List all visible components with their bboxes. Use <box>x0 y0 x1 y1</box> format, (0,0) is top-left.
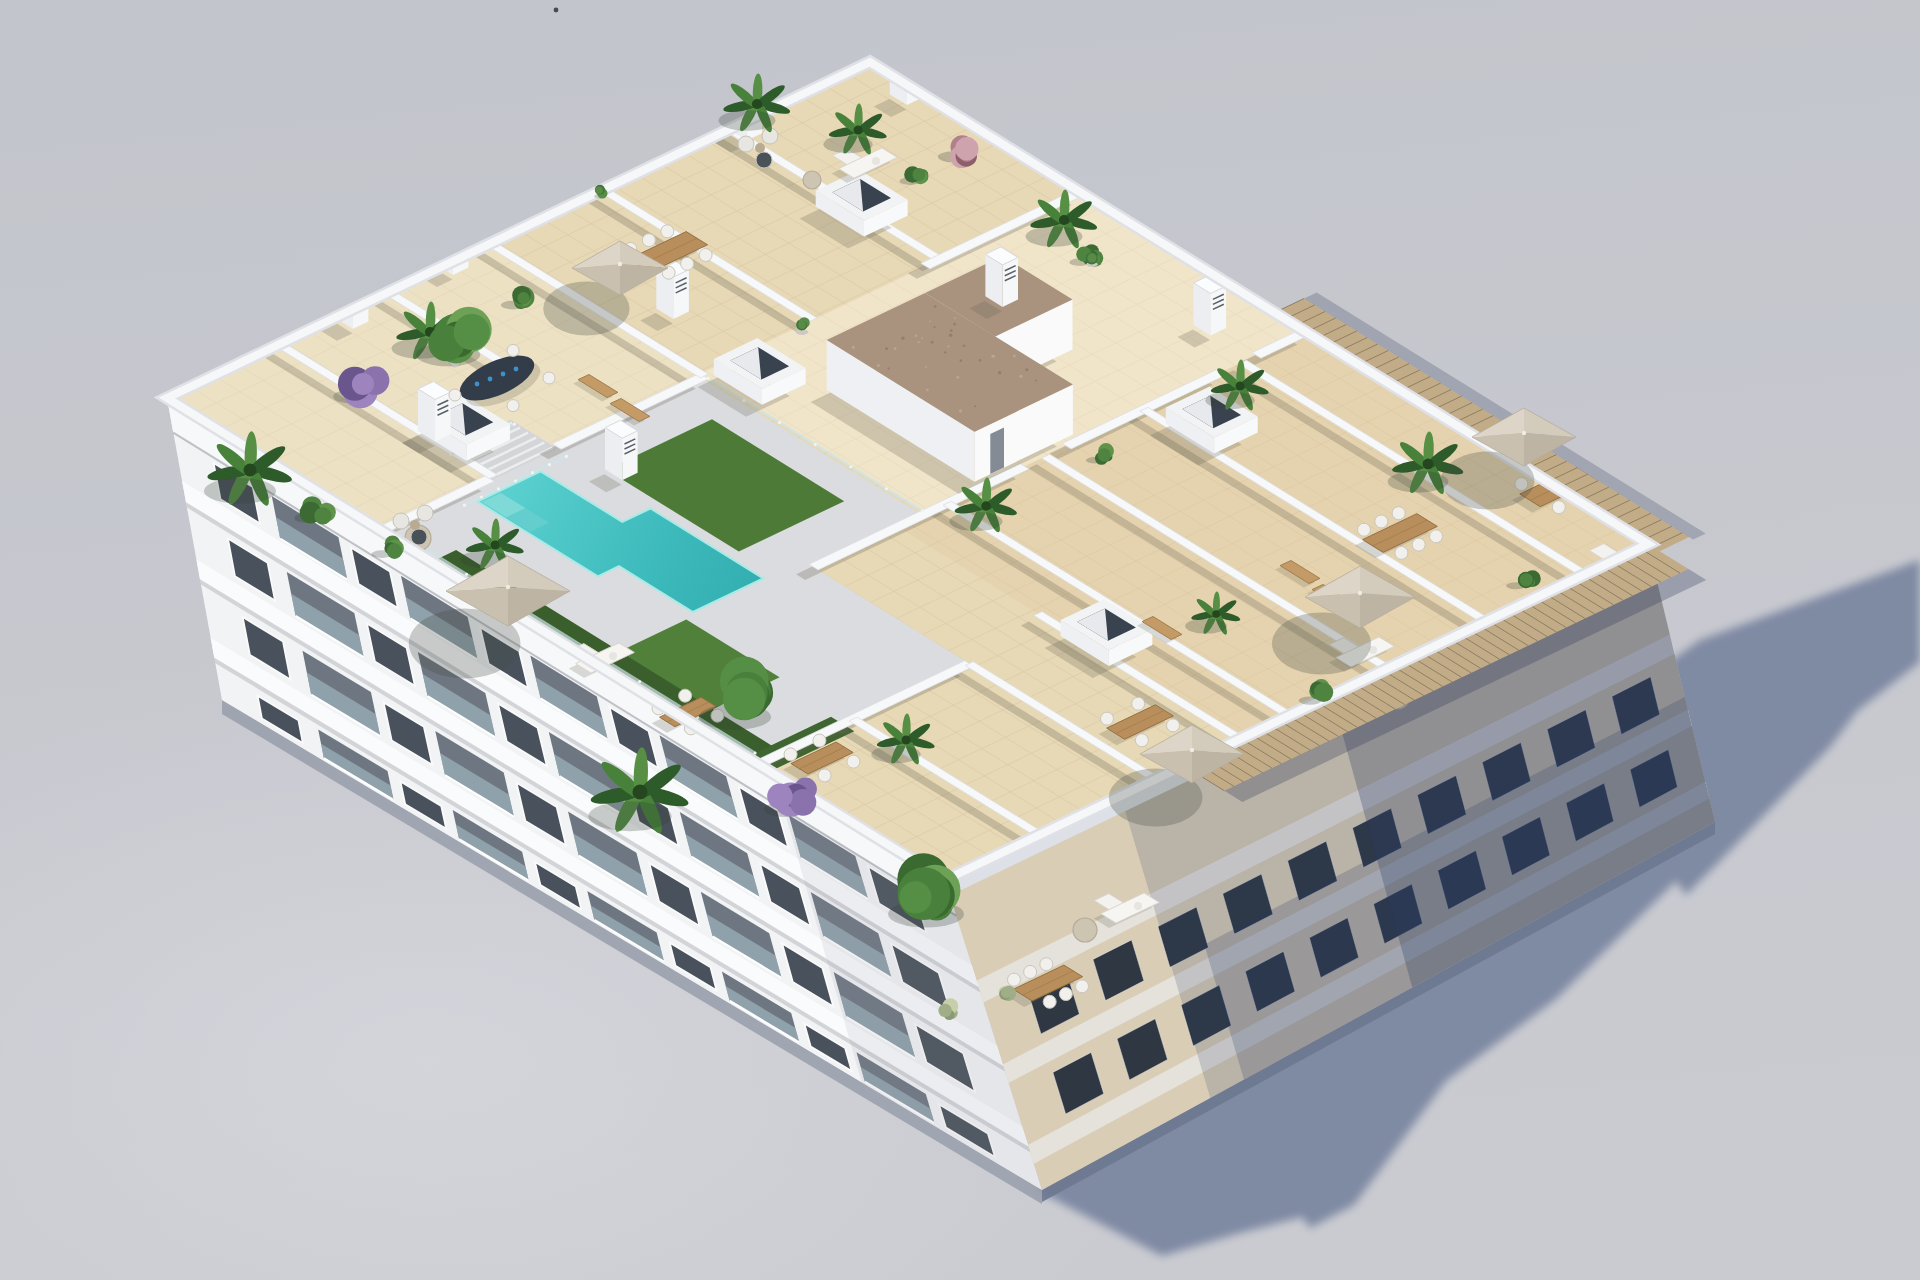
chair <box>699 249 712 262</box>
chair <box>679 689 692 702</box>
chair <box>1043 995 1056 1008</box>
render-canvas <box>0 0 1920 1280</box>
chair <box>1059 988 1072 1001</box>
core-door <box>990 428 1004 475</box>
chair <box>813 734 826 747</box>
aerial-building-render <box>0 0 1920 1280</box>
chair <box>1392 507 1405 520</box>
chair <box>1375 515 1388 528</box>
chair <box>1167 719 1180 732</box>
chair <box>784 748 797 761</box>
chair <box>1357 523 1370 536</box>
chair <box>1132 697 1145 710</box>
chair <box>847 755 860 768</box>
coffee-table <box>1073 918 1097 942</box>
chair <box>1430 530 1443 543</box>
chair <box>661 225 674 238</box>
chair <box>1076 980 1089 993</box>
chair <box>1552 501 1565 514</box>
chair <box>642 234 655 247</box>
chair <box>818 769 831 782</box>
chair <box>681 257 694 270</box>
chair <box>1024 965 1037 978</box>
chair <box>1135 734 1148 747</box>
specks <box>554 8 559 13</box>
chair <box>1395 546 1408 559</box>
chair <box>1007 973 1020 986</box>
chair <box>1040 958 1053 971</box>
bird-speck <box>554 8 559 13</box>
chair <box>1100 712 1113 725</box>
chair <box>1412 538 1425 551</box>
coffee-table <box>803 171 821 189</box>
